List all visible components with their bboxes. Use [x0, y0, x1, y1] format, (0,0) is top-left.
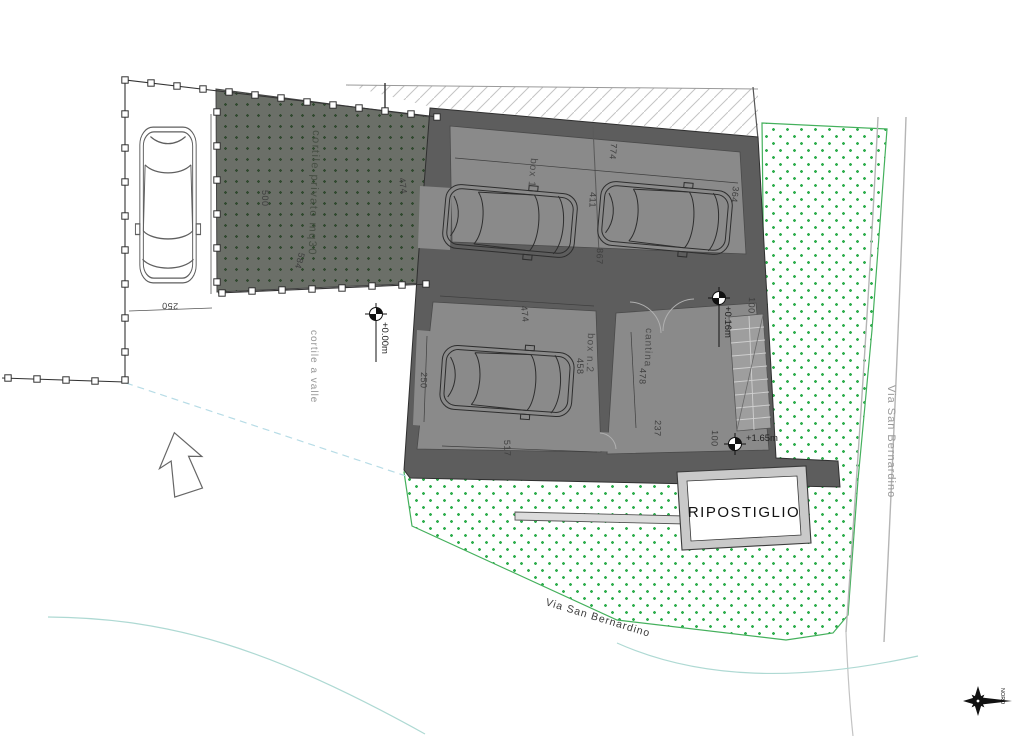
cantina-label: cantina — [642, 328, 654, 368]
dim-box1-bay-left: 411 — [587, 192, 598, 208]
dim-court-depth: 500 — [260, 190, 270, 207]
slope-arrow — [153, 428, 209, 499]
compass-rose: NORD — [963, 686, 1012, 716]
dim-250-fence: 250 — [129, 301, 212, 312]
compass-center — [977, 700, 980, 703]
dim-court-side: 474 — [397, 177, 409, 195]
dim-box2-depth: 458 — [575, 358, 585, 375]
dim-box2-front: 517 — [502, 440, 513, 457]
dim-box2-width: 474 — [519, 305, 531, 322]
car-outdoor — [135, 127, 200, 283]
street-label-right: Via San Bernardino — [885, 385, 897, 498]
svg-text:+0.00m: +0.00m — [379, 322, 390, 354]
valley-courtyard-label: cortile a valle — [308, 330, 319, 403]
ripostiglio-label: RIPOSTIGLIO — [688, 504, 800, 521]
dim-landing-bottom: 100 — [709, 430, 720, 447]
dim-landing-top: 100 — [746, 297, 757, 314]
dim-box1-width: 774 — [608, 143, 619, 160]
box1-door-opening — [418, 186, 452, 250]
compass-north-label: NORD — [999, 688, 1005, 704]
contour-line-left — [48, 617, 425, 734]
dim-box1-depth: 867 — [594, 248, 605, 265]
svg-text:250: 250 — [161, 301, 178, 312]
dim-box1-bay-right: 364 — [729, 186, 741, 204]
dim-cantina-depth: 478 — [637, 368, 648, 385]
site-plan-drawing: cortile privato mq30 584 474 500 — [0, 0, 1024, 736]
contour-line-right — [617, 643, 918, 673]
dim-cantina-width: 237 — [652, 420, 663, 437]
svg-text:+1.65m: +1.65m — [746, 433, 778, 444]
svg-text:+0.16m: +0.16m — [722, 306, 733, 338]
level-marker-courtyard: +0.00m — [365, 303, 390, 362]
private-courtyard: cortile privato mq30 584 474 500 — [211, 89, 438, 294]
dim-box2-door: 250 — [419, 372, 429, 389]
